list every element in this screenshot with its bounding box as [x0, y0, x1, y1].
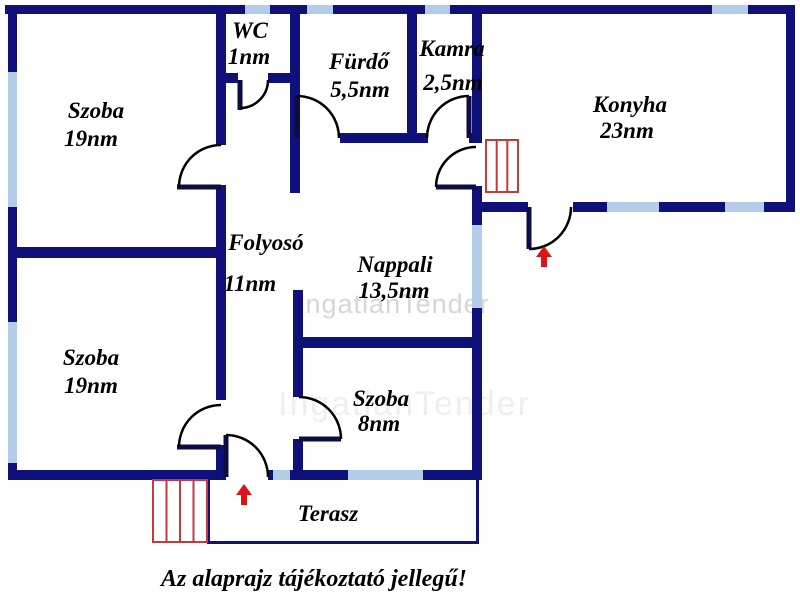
window-top-2 [307, 5, 333, 14]
room-area-wc: 1nm [228, 44, 270, 69]
room-area-furdo: 5,5nm [330, 77, 389, 102]
room-area-szoba-small: 8nm [358, 411, 400, 436]
room-area-konyha: 23nm [599, 118, 654, 143]
room-label-folyoso: Folyosó [227, 230, 303, 255]
room-area-szoba-top: 19nm [64, 126, 118, 151]
room-label-szoba-top: Szoba [68, 98, 124, 123]
room-label-szoba-small: Szoba [353, 386, 409, 411]
stairs-outdoor [153, 480, 207, 542]
room-area-kamra: 2,5nm [422, 70, 482, 95]
room-label-kamra: Kamra [418, 36, 484, 61]
window-top-1 [245, 5, 270, 14]
window-top-4 [712, 5, 748, 14]
floorplan-canvas: IngatlanTender IngatlanTender [0, 0, 800, 600]
room-label-furdo: Fürdő [328, 49, 391, 74]
window-bottom-1 [273, 470, 290, 480]
room-area-nappali: 13,5nm [359, 278, 430, 303]
stairs-kitchen [486, 140, 518, 192]
room-area-szoba-bottom: 19nm [64, 373, 118, 398]
window-nappali [472, 225, 482, 308]
room-label-nappali: Nappali [356, 252, 433, 277]
floorplan-drawing: IngatlanTender IngatlanTender [0, 0, 800, 600]
room-area-folyoso: 11nm [224, 271, 276, 296]
window-left-2 [8, 322, 17, 463]
window-left-1 [8, 72, 17, 207]
room-label-konyha: Konyha [592, 92, 667, 117]
room-label-terasz: Terasz [298, 501, 359, 526]
disclaimer-caption: Az alaprajz tájékoztató jellegű! [159, 566, 467, 592]
room-label-wc: WC [232, 18, 268, 43]
room-label-szoba-bottom: Szoba [63, 345, 119, 370]
entrance-arrow-icon-terrace [236, 484, 252, 505]
window-bottom-2 [348, 470, 423, 480]
window-top-3 [425, 5, 450, 14]
room-labels: WC 1nm Fürdő 5,5nm Kamra 2,5nm Konyha 23… [63, 18, 667, 526]
window-kitchen-1 [607, 202, 659, 212]
window-kitchen-2 [725, 202, 764, 212]
